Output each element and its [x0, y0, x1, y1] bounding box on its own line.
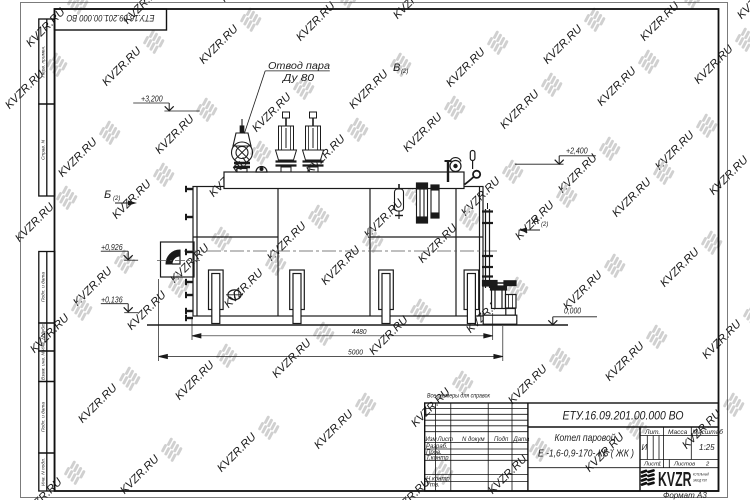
svg-text:Т.контр: Т.контр	[426, 456, 449, 462]
svg-text:Лист: Лист	[643, 462, 659, 468]
svg-text:Лист: Лист	[437, 437, 453, 443]
svg-text:И: И	[642, 443, 648, 452]
svg-text:КОТЕЛЬНЫЙ: КОТЕЛЬНЫЙ	[693, 472, 709, 477]
svg-text:Подп: Подп	[494, 437, 509, 443]
svg-text:Утв.: Утв.	[425, 483, 440, 489]
svg-text:+0,136: +0,136	[101, 296, 123, 305]
svg-text:Отвод пара: Отвод пара	[268, 61, 330, 72]
svg-text:0,000: 0,000	[564, 307, 582, 316]
svg-text:+3,200: +3,200	[141, 95, 163, 104]
svg-text:Е -1,6-0,9-170- КБ ( ЖК ): Е -1,6-0,9-170- КБ ( ЖК )	[538, 449, 634, 460]
svg-text:Подп. и дата: Подп. и дата	[41, 402, 47, 432]
svg-text:+0,926: +0,926	[101, 243, 123, 252]
svg-text:В: В	[393, 62, 400, 74]
svg-text:А: А	[531, 215, 539, 227]
svg-text:(2): (2)	[541, 222, 548, 228]
svg-text:ЕТУ.16.09.201.00.000 ВО: ЕТУ.16.09.201.00.000 ВО	[66, 12, 154, 23]
svg-text:(2): (2)	[113, 196, 120, 202]
svg-text:Дата: Дата	[513, 437, 530, 443]
svg-text:N докум: N докум	[462, 437, 485, 443]
svg-text:Листов: Листов	[673, 462, 695, 468]
svg-text:1:25: 1:25	[699, 443, 715, 452]
svg-text:Подп. и дата: Подп. и дата	[41, 272, 47, 302]
svg-text:+2,400: +2,400	[566, 147, 588, 156]
svg-text:1: 1	[658, 462, 661, 468]
svg-text:Ду 80: Ду 80	[282, 73, 315, 84]
svg-text:4480: 4480	[352, 329, 367, 336]
svg-text:Изм: Изм	[426, 437, 437, 443]
svg-text:Инв. N дубл.: Инв. N дубл.	[41, 323, 47, 351]
svg-text:Перв. примен.: Перв. примен.	[41, 46, 47, 78]
svg-text:Масса: Масса	[668, 429, 688, 436]
svg-text:5000: 5000	[348, 350, 363, 357]
svg-text:Формат А3: Формат А3	[663, 491, 707, 500]
svg-text:Взам. инв. N: Взам. инв. N	[41, 352, 47, 380]
svg-text:Лит.: Лит.	[644, 429, 660, 436]
svg-text:KVZR: KVZR	[658, 469, 692, 491]
svg-text:Масштаб: Масштаб	[693, 428, 724, 436]
svg-text:Инв. N подл.: Инв. N подл.	[41, 458, 47, 486]
svg-text:Справ. N: Справ. N	[41, 139, 47, 160]
svg-text:ЕТУ.16.09.201.00.000 ВО: ЕТУ.16.09.201.00.000 ВО	[563, 409, 684, 423]
svg-text:(2): (2)	[401, 69, 408, 75]
svg-text:ЗАВОД РЭП: ЗАВОД РЭП	[693, 478, 707, 483]
svg-text:Б: Б	[104, 189, 111, 201]
svg-text:Все размеры для справок: Все размеры для справок	[427, 392, 491, 400]
svg-text:Котел паровой: Котел паровой	[555, 432, 616, 444]
